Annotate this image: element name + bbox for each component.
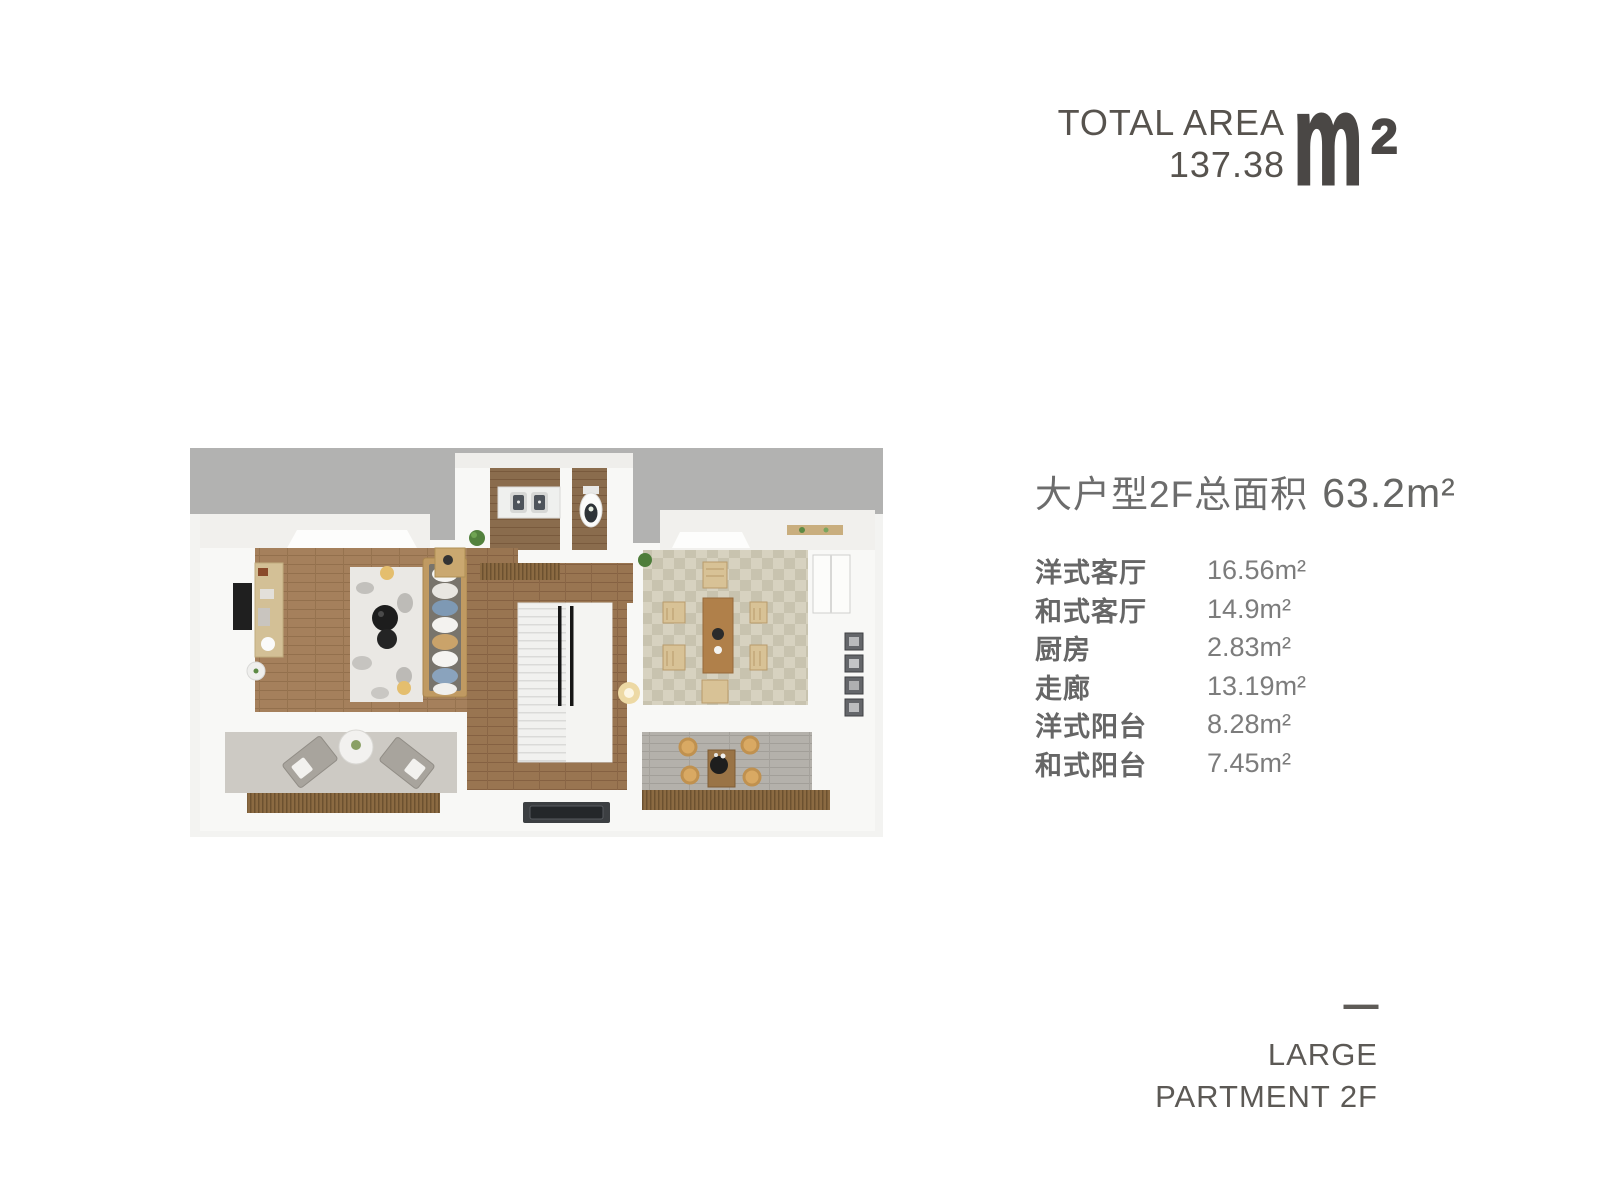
backdrop-notch-right	[633, 448, 660, 543]
dash-mark: —	[1155, 988, 1378, 1022]
room-area-value: 2.83m²	[1207, 632, 1395, 663]
floorplan-image	[190, 448, 883, 837]
square-meter-logo: m 2	[1293, 104, 1411, 200]
footer-line-2: PARTMENT 2F	[1155, 1076, 1378, 1118]
backdrop-notch-left	[430, 448, 455, 540]
western-living-room	[233, 530, 467, 712]
coffee-table	[372, 605, 398, 631]
unit-area-unit: m²	[1406, 470, 1456, 516]
wall-shelf	[787, 525, 843, 535]
ceiling-opening	[672, 532, 750, 548]
room-label: 洋式阳台	[1035, 705, 1207, 744]
room-area-value: 7.45m²	[1207, 748, 1395, 779]
total-area-label: TOTAL AREA	[1058, 102, 1285, 143]
unit-area-heading: 大户型2F总面积63.2m²	[1035, 464, 1456, 518]
coffee-table-small	[377, 629, 397, 649]
room-area-list: 洋式客厅 16.56m² 和式客厅 14.9m² 厨房 2.83m² 走廊 13…	[1035, 551, 1395, 783]
logo-m-glyph: m	[1293, 104, 1363, 200]
balcony-decking	[247, 793, 440, 813]
plant-icon	[469, 530, 485, 546]
plant-icon	[638, 553, 652, 567]
room-label: 厨房	[1035, 628, 1207, 667]
room-area-value: 13.19m²	[1207, 671, 1395, 702]
balcony-decking	[642, 790, 830, 810]
stair-rail	[570, 606, 574, 706]
toilet-room	[572, 468, 607, 550]
room-row-western-balcony: 洋式阳台 8.28m²	[1035, 705, 1395, 744]
ceiling-opening	[287, 530, 417, 548]
footer-caption: — LARGE PARTMENT 2F	[1155, 988, 1378, 1118]
room-row-western-living: 洋式客厅 16.56m²	[1035, 551, 1395, 590]
room-row-kitchen: 厨房 2.83m²	[1035, 628, 1395, 667]
total-area-text: TOTAL AREA 137.38	[1020, 102, 1285, 187]
room-label: 和式客厅	[1035, 590, 1207, 629]
doormat	[523, 802, 610, 823]
room-label: 洋式客厅	[1035, 551, 1207, 590]
logo-sup-2: 2	[1371, 111, 1398, 164]
room-row-japanese-balcony: 和式阳台 7.45m²	[1035, 744, 1395, 783]
pouf	[380, 566, 394, 580]
japanese-balcony	[642, 732, 830, 810]
western-balcony	[225, 730, 457, 813]
staircase	[518, 603, 612, 762]
room-label: 和式阳台	[1035, 744, 1207, 783]
kitchen-sink-counter	[498, 487, 560, 518]
unit-title: 大户型2F总面积	[1035, 474, 1308, 515]
pouf	[397, 681, 411, 695]
shoe-rack	[480, 563, 560, 580]
room-area-value: 16.56m²	[1207, 555, 1395, 586]
unit-area-value: 63.2	[1322, 470, 1406, 516]
total-area-badge: TOTAL AREA 137.38 m 2	[1020, 102, 1411, 200]
stair-rail	[558, 606, 562, 706]
tv-icon	[233, 583, 252, 630]
room-area-value: 14.9m²	[1207, 594, 1395, 625]
total-area-value: 137.38	[1020, 144, 1285, 186]
room-row-corridor: 走廊 13.19m²	[1035, 667, 1395, 706]
floorplan-svg	[190, 448, 883, 837]
wall-shade-kitchen	[455, 453, 633, 468]
room-area-value: 8.28m²	[1207, 709, 1395, 740]
sofa	[423, 558, 467, 697]
footer-line-1: LARGE	[1155, 1034, 1378, 1076]
room-row-japanese-living: 和式客厅 14.9m²	[1035, 590, 1395, 629]
window	[813, 555, 850, 613]
room-label: 走廊	[1035, 667, 1207, 706]
